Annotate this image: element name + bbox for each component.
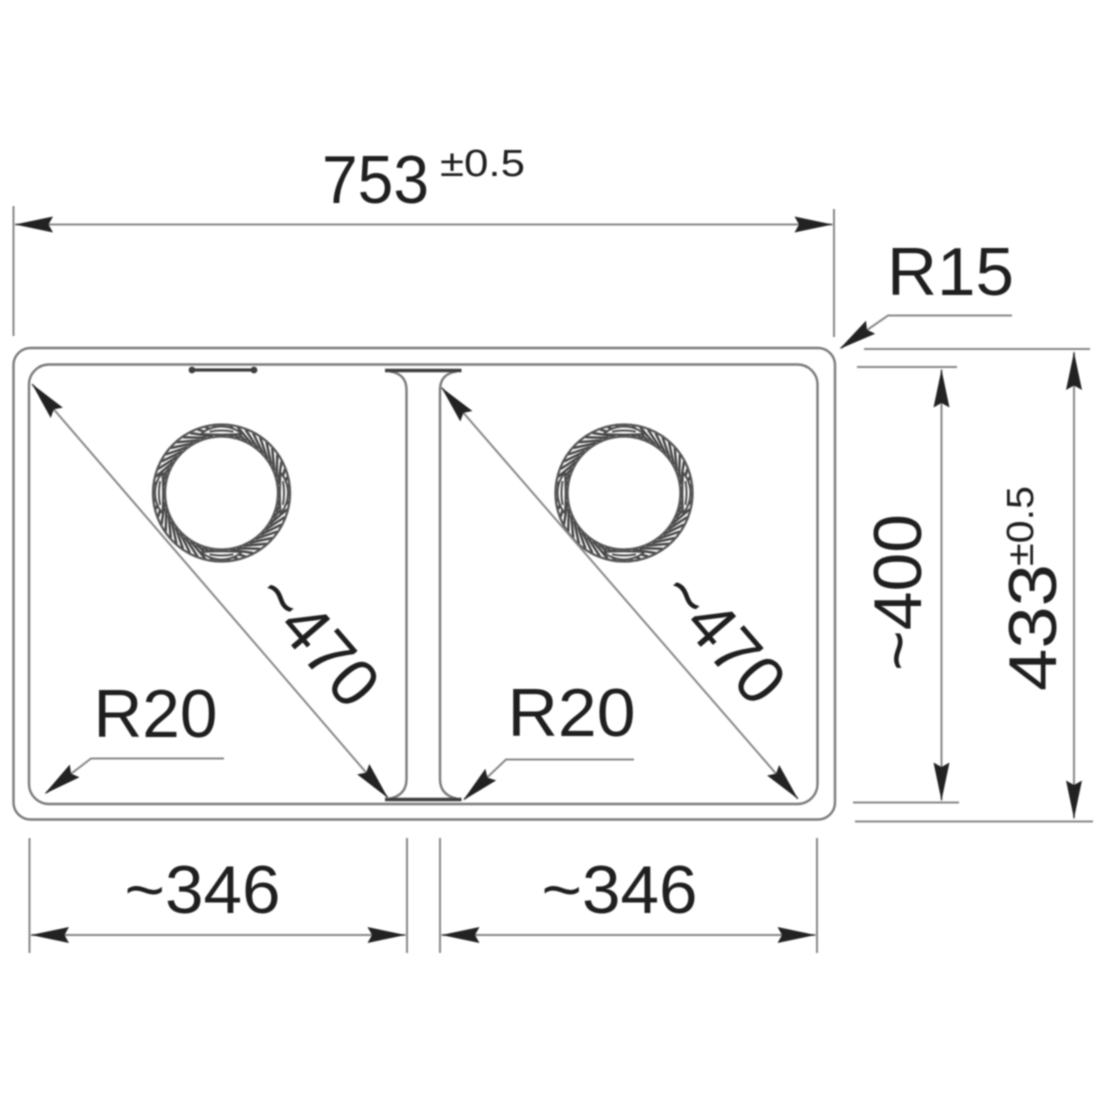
svg-text:753: 753 — [322, 142, 429, 218]
svg-text:~346: ~346 — [542, 852, 698, 928]
svg-text:433: 433 — [995, 564, 1071, 691]
svg-text:R20: R20 — [508, 675, 636, 751]
svg-text:±0.5: ±0.5 — [440, 143, 525, 185]
svg-text:R15: R15 — [887, 234, 1014, 310]
svg-text:~400: ~400 — [860, 514, 936, 671]
svg-text:±0.5: ±0.5 — [1000, 486, 1042, 566]
svg-text:~346: ~346 — [125, 852, 281, 928]
svg-text:R20: R20 — [94, 676, 218, 752]
